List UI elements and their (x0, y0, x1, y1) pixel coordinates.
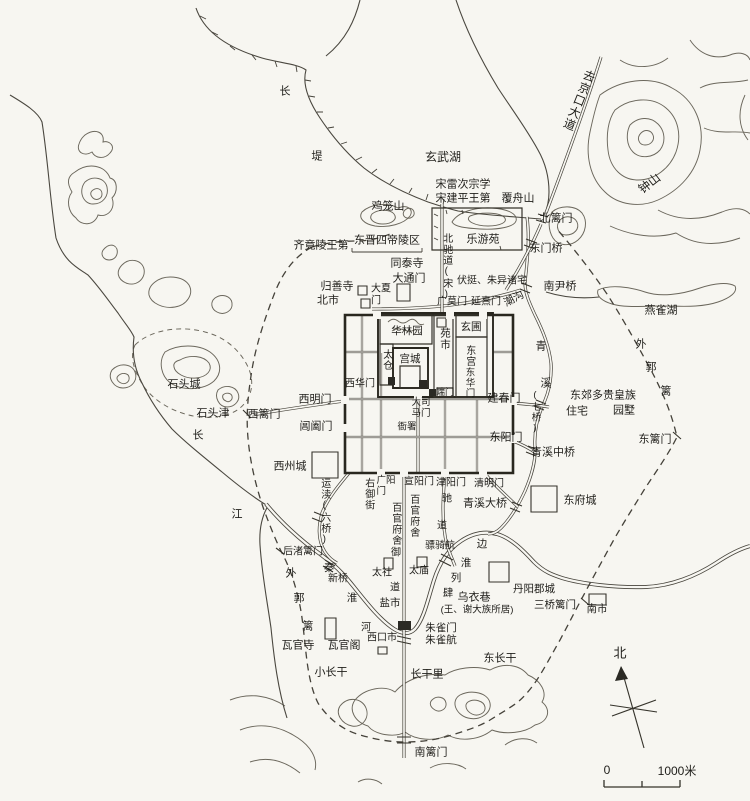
map-label-gongcheng-palace: 宫城 (400, 353, 421, 365)
map-label-daxia-gate: 大夏 门 (371, 284, 391, 307)
map-label-waguan-pavilion: 瓦官阁 (328, 640, 361, 653)
map-label-yangtze-jiang: 江 (232, 509, 243, 522)
map-label-east-suburb-zhuzhai: 住宅 (566, 406, 588, 419)
scale-max-label: 1000米 (658, 765, 697, 779)
map-label-south-market: 南市 (587, 603, 608, 615)
map-label-dongyang-gate: 东阳门 (490, 432, 523, 445)
map-label-song-jianping-residence: 宋建平王第 (436, 193, 491, 206)
map-label-xili-gate: 西篱门 (248, 409, 281, 422)
map-label-yanxi-gate: 延熹门 (471, 296, 501, 308)
map-label-guishan-temple: 归善寺 (321, 281, 354, 294)
map-label-imperial-road-yu: 御 (391, 547, 401, 559)
map-label-east-suburb-yuanshu: 园墅 (613, 405, 635, 418)
map-label-taicang-granary: 太仓 (380, 349, 392, 371)
map-label-outer-fence-east-wai: 外 (636, 339, 647, 352)
map-label-nanli-gate: 南篱门 (415, 747, 448, 760)
map-label-xikou-market: 西口市 (367, 632, 397, 644)
map-label-piaoqi-ferry: 骠骑航 (425, 540, 455, 552)
map-label-jilong-mountain: 鸡笼山 (372, 201, 405, 214)
map-label-jinyang-gate: 津阳门 (436, 477, 466, 489)
map-label-dongjin-tombs: 东晋四帝陵区 (354, 235, 420, 248)
map-label-guangmo-gate: 广莫门 (437, 296, 467, 308)
map-label-outer-fence-east-guo: 郭 (646, 362, 657, 375)
compass-north-label: 北 (613, 647, 626, 662)
map-label-north-market: 北市 (317, 295, 339, 308)
map-label-xiao-changgan: 小长干 (315, 667, 348, 680)
map-label-officials-quarters-west: 百官府舍 (389, 502, 401, 546)
map-label-xihua-gate: 西华门 (345, 378, 375, 390)
map-label-chaogou-channel: 潮沟 (502, 289, 526, 310)
map-label-qinhuai-huai: 淮 (347, 592, 358, 604)
map-label-sanqiaoli-gate: 三桥篱门 (534, 599, 576, 611)
scale-zero-label: 0 (604, 764, 611, 778)
map-label-fuzhou-mountain: 覆舟山 (502, 193, 535, 206)
map-label-zhuque-gate: 朱雀门 (425, 622, 457, 634)
map-label-xizhou-city: 西州城 (274, 461, 307, 474)
map-label-qingxi-xi: 溪 (541, 378, 552, 391)
map-label-dongli-gate: 东篱门 (639, 434, 672, 447)
map-label-right-imperial-street: 右御街 (362, 478, 374, 511)
map-label-futing-zhuyi-residences: 伏挺、朱异诸宅 (457, 275, 527, 287)
map-label-wuyi-lane-note: (王、谢大族所居) (441, 606, 514, 617)
map-label-dike-chang: 长 (280, 86, 291, 99)
map-label-officials-quarters-east: 百官府舍 (407, 494, 419, 538)
map-label-donghua-gate: 东华门 (463, 367, 474, 399)
map-label-layer: 长堤玄武湖宋雷次宗学宋建平王第覆舟山鸡笼山北篱门去京口大道钟山齐竟陵王第东晋四帝… (0, 0, 750, 801)
map-label-hualin-garden: 华林园 (391, 325, 423, 337)
map-label-dike-di: 堤 (312, 151, 323, 164)
map-label-chidao-chi: 驰 (442, 493, 452, 505)
map-label-chidao-dao: 道 (437, 520, 447, 532)
map-label-wuyi-lane: 乌衣巷 (458, 592, 491, 605)
map-label-jianchun-gate: 建春门 (488, 393, 521, 406)
historical-map-page: 长堤玄武湖宋雷次宗学宋建平王第覆舟山鸡笼山北篱门去京口大道钟山齐竟陵王第东晋四帝… (0, 0, 750, 801)
map-label-jingkou-road: 去京口大道 (559, 67, 596, 132)
map-label-riverside-bian: 边 (477, 538, 488, 550)
map-label-tongtai-temple: 同泰寺 (391, 258, 424, 271)
map-label-imperial-road-dao: 道 (390, 582, 400, 594)
map-label-riverside-huai: 淮 (461, 557, 472, 569)
map-label-outer-fence-west-li: 篱 (303, 621, 314, 634)
map-label-waguan-temple: 瓦官寺 (282, 640, 315, 653)
map-label-guangyang-gate: 广阳 门 (376, 476, 395, 498)
map-label-leyou-garden: 乐游苑 (467, 234, 500, 247)
map-label-seven-bridges: (七桥) (529, 390, 540, 435)
map-label-qingxi-qing: 青 (536, 341, 547, 354)
map-label-nanyin-bridge: 南尹桥 (544, 281, 577, 294)
map-label-yangtze-chang: 长 (193, 430, 204, 443)
map-label-east-palace: 东宫 (463, 345, 475, 367)
map-label-xuanpu-garden: 玄圃 (461, 321, 482, 333)
map-label-ximing-gate: 西明门 (299, 394, 332, 407)
map-label-yamen-offices: 衙署 (397, 423, 416, 434)
map-label-beili-gate: 北篱门 (540, 213, 573, 226)
map-label-outer-fence-west-wai: 外 (286, 568, 297, 581)
map-label-salt-market: 盐市 (380, 597, 401, 609)
map-label-taimiao-temple: 太庙 (409, 565, 429, 577)
map-label-taishe-altar: 太社 (372, 567, 392, 579)
map-label-yuan-market: 苑市 (439, 328, 451, 351)
map-label-yundu-canal: 运渎(六桥) (318, 478, 330, 546)
map-label-xuanwu-lake: 玄武湖 (425, 151, 461, 165)
map-label-danyang-commandery: 丹阳郡城 (513, 583, 555, 595)
map-label-qingming-gate: 清明门 (474, 478, 504, 490)
map-label-zhuque-ferry: 朱雀航 (425, 634, 457, 646)
map-label-dongmen-bridge: 东门桥 (530, 243, 563, 256)
map-label-changhe-gate: 阊阖门 (300, 421, 333, 434)
map-label-song-leicizong-school: 宋雷次宗学 (436, 179, 491, 192)
map-label-east-suburb-note: 东郊多贵皇族 (570, 390, 636, 403)
map-label-duan-gate: 端门 (436, 387, 454, 397)
map-label-qi-jingling-residence: 齐竟陵王第 (294, 240, 349, 253)
map-label-datong-gate: 大通门 (393, 273, 426, 286)
map-label-outer-fence-west-guo: 郭 (294, 593, 305, 606)
map-label-shitou-city: 石头城 (168, 379, 201, 392)
map-label-dongfu-city: 东府城 (564, 495, 597, 508)
map-label-qingxi-middle-bridge: 青溪中桥 (531, 447, 575, 460)
map-label-dong-changgan: 东长干 (484, 653, 517, 666)
map-label-yanque-lake: 燕雀湖 (645, 305, 678, 318)
map-label-outer-fence-east-li: 篱 (661, 386, 672, 399)
map-label-zhong-mountain: 钟山 (636, 171, 663, 197)
map-label-dasima-gate: 大司 马门 (411, 398, 430, 420)
map-label-riverside-lie: 列 (451, 572, 462, 584)
map-label-qingxi-great-bridge: 青溪大桥 (463, 498, 507, 511)
map-label-houzhuli-gate: 后渚篱门 (283, 546, 323, 558)
map-label-shitou-ferry: 石头津 (197, 408, 230, 421)
map-label-xin-bridge: 新桥 (328, 573, 348, 585)
map-label-xuanyang-gate: 宣阳门 (404, 476, 434, 488)
map-label-north-chidao: 北驰道(宋) (440, 233, 452, 301)
map-label-qinhuai-qin: 秦 (324, 562, 335, 574)
map-label-changgan-li: 长干里 (411, 669, 444, 682)
map-label-riverside-si: 肆 (443, 587, 454, 599)
